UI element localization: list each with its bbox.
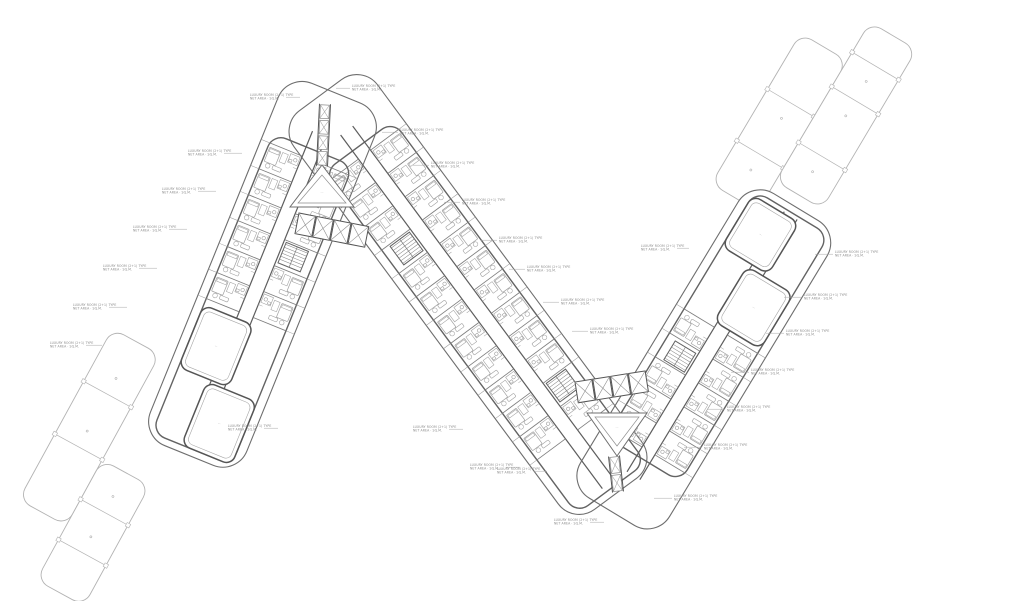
annotation-label: LUXURY ROOM (2+1) TYPENET AREA · SQ.M.	[462, 198, 505, 205]
annotation-label: LUXURY ROOM (2+1) TYPENET AREA · SQ.M.	[704, 443, 747, 450]
annotation-label: LUXURY ROOM (2+1) TYPENET AREA · SQ.M.	[50, 341, 93, 348]
annotation-label: LUXURY ROOM (2+1) TYPENET AREA · SQ.M.	[751, 368, 794, 375]
annotation-label: LUXURY ROOM (2+1) TYPENET AREA · SQ.M.	[497, 467, 540, 474]
annotation-label: LUXURY ROOM (2+1) TYPENET AREA · SQ.M.	[162, 187, 205, 194]
floor-plan-svg: ·–··–··–··–··–··–·LUXURY ROOM (2+1) TYPE…	[0, 0, 1024, 601]
left-wing-bg	[141, 74, 384, 475]
annotation-label: LUXURY ROOM (2+1) TYPENET AREA · SQ.M.	[188, 149, 231, 156]
annotation-label: LUXURY ROOM (2+1) TYPENET AREA · SQ.M.	[133, 225, 176, 232]
annotation-label: LUXURY ROOM (2+1) TYPENET AREA · SQ.M.	[804, 293, 847, 300]
right-wing-bg	[567, 180, 840, 538]
floor-plan-sheet: ·–··–··–··–··–··–·LUXURY ROOM (2+1) TYPE…	[0, 0, 1024, 601]
annotation-label: LUXURY ROOM (2+1) TYPENET AREA · SQ.M.	[641, 244, 684, 251]
annotation-label: LUXURY ROOM (2+1) TYPENET AREA · SQ.M.	[499, 236, 542, 243]
annotation-label: LUXURY ROOM (2+1) TYPENET AREA · SQ.M.	[674, 494, 717, 501]
annotation-label: LUXURY ROOM (2+1) TYPENET AREA · SQ.M.	[103, 264, 146, 271]
annotation-label: LUXURY ROOM (2+1) TYPENET AREA · SQ.M.	[413, 425, 456, 432]
annotation-label: LUXURY ROOM (2+1) TYPENET AREA · SQ.M.	[431, 161, 474, 168]
annotation-label: LUXURY ROOM (2+1) TYPENET AREA · SQ.M.	[400, 128, 443, 135]
annotation-label: LUXURY ROOM (2+1) TYPENET AREA · SQ.M.	[561, 298, 604, 305]
annotation-label: LUXURY ROOM (2+1) TYPENET AREA · SQ.M.	[786, 329, 829, 336]
annotation-label: LUXURY ROOM (2+1) TYPENET AREA · SQ.M.	[228, 424, 271, 431]
room-mark: ·–·	[616, 426, 619, 429]
annotation-label: LUXURY ROOM (2+1) TYPENET AREA · SQ.M.	[554, 518, 597, 525]
annotation-label: LUXURY ROOM (2+1) TYPENET AREA · SQ.M.	[73, 303, 116, 310]
room-mark: ·–·	[321, 191, 324, 194]
annotation-label: LUXURY ROOM (2+1) TYPENET AREA · SQ.M.	[527, 265, 570, 272]
annotation-label: LUXURY ROOM (2+1) TYPENET AREA · SQ.M.	[727, 405, 770, 412]
annotation-label: LUXURY ROOM (2+1) TYPENET AREA · SQ.M.	[352, 84, 395, 91]
annotation-label: LUXURY ROOM (2+1) TYPENET AREA · SQ.M.	[590, 327, 633, 334]
annotation-label: LUXURY ROOM (2+1) TYPENET AREA · SQ.M.	[835, 250, 878, 257]
